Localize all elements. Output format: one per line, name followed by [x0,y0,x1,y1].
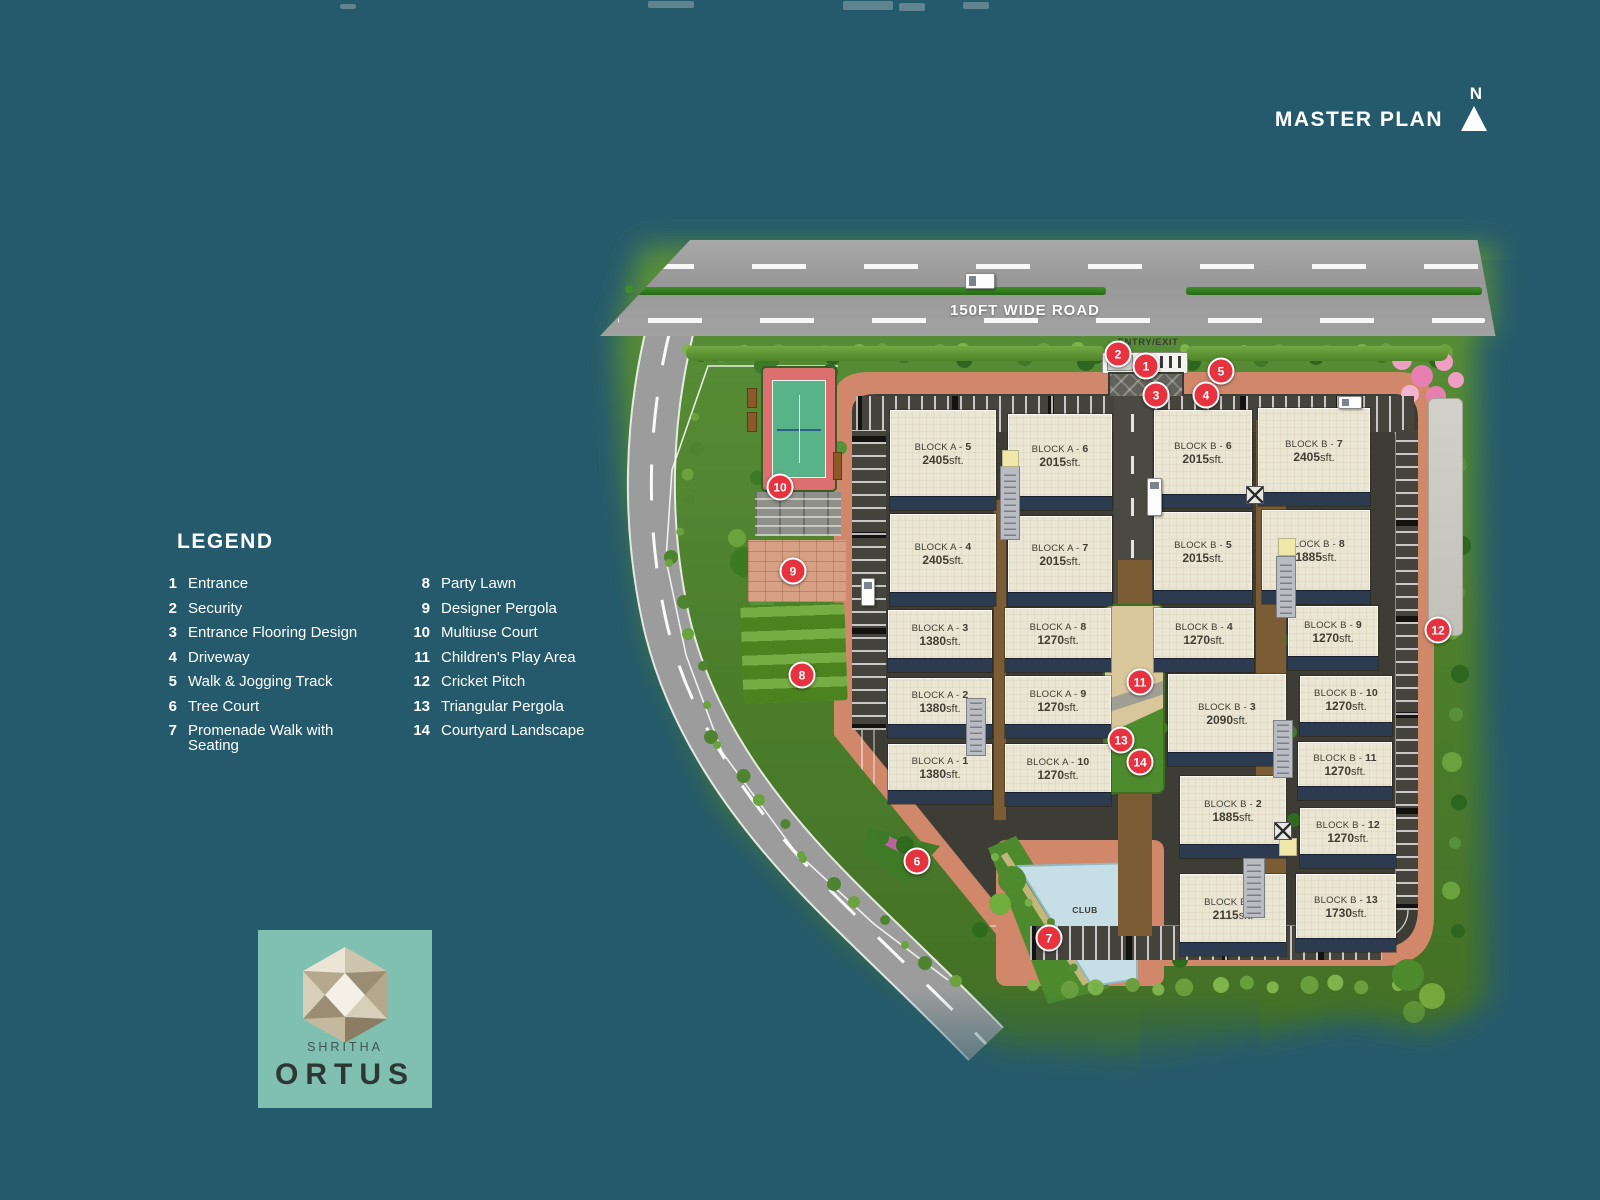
legend-item-label: Walk & Jogging Track [188,674,333,689]
legend-item-label: Driveway [188,650,250,665]
legend-item: 9 Designer Pergola [408,601,633,616]
legend-item-label: Designer Pergola [441,601,557,616]
legend-item: 11 Children's Play Area [408,650,633,665]
legend-item-number: 3 [155,625,177,640]
legend-item-number: 5 [155,674,177,689]
logo-name: ORTUS [258,1058,432,1092]
legend-item: 13 Triangular Pergola [408,699,633,714]
legend-item-label: Multiuse Court [441,625,538,640]
legend-item-label: Cricket Pitch [441,674,525,689]
legend-item-number: 7 [155,723,177,753]
legend-item-label: Tree Court [188,699,259,714]
legend-item-number: 11 [408,650,430,665]
amenity-marker: 3 [1143,382,1170,409]
amenity-marker: 2 [1105,341,1132,368]
legend-item-number: 13 [408,699,430,714]
legend-item-number: 6 [155,699,177,714]
legend-item: 12 Cricket Pitch [408,674,633,689]
legend-item: 6 Tree Court [155,699,380,714]
legend-item-label: Children's Play Area [441,650,576,665]
legend-panel: LEGEND 1 Entrance 2 Security 3 Entrance … [155,530,633,753]
logo-brand: SHRITHA [258,1040,432,1054]
legend-item-label: Entrance Flooring Design [188,625,357,640]
amenity-marker: 12 [1425,617,1452,644]
legend-item-label: Entrance [188,576,248,591]
legend-item-label: Courtyard Landscape [441,723,584,738]
legend-item: 10 Multiuse Court [408,625,633,640]
legend-item-number: 1 [155,576,177,591]
legend-item: 7 Promenade Walk with Seating [155,723,380,753]
legend-item-number: 4 [155,650,177,665]
legend-item-label: Triangular Pergola [441,699,564,714]
legend-item-label: Security [188,601,242,616]
legend-item-number: 2 [155,601,177,616]
legend-item-number: 9 [408,601,430,616]
legend-item: 2 Security [155,601,380,616]
legend-item: 3 Entrance Flooring Design [155,625,380,640]
legend-item-number: 10 [408,625,430,640]
legend-item-number: 8 [408,576,430,591]
legend-item: 14 Courtyard Landscape [408,723,633,738]
legend-title: LEGEND [177,530,633,554]
legend-item: 8 Party Lawn [408,576,633,591]
legend-item: 1 Entrance [155,576,380,591]
brand-logo: SHRITHA ORTUS [258,930,432,1108]
amenity-marker: 4 [1193,382,1220,409]
legend-item-label: Promenade Walk with Seating [188,723,380,753]
amenity-marker: 8 [789,662,816,689]
gem-icon [301,947,389,1043]
legend-item-number: 12 [408,674,430,689]
amenity-marker: 9 [780,558,807,585]
amenity-marker: 5 [1208,358,1235,385]
amenity-marker: 7 [1036,925,1063,952]
legend-item: 5 Walk & Jogging Track [155,674,380,689]
amenity-marker: 13 [1108,727,1135,754]
amenity-marker: 14 [1127,749,1154,776]
legend-item: 4 Driveway [155,650,380,665]
amenity-marker: 10 [767,474,794,501]
legend-item-number: 14 [408,723,430,738]
legend-item-label: Party Lawn [441,576,516,591]
legend-column-2: 8 Party Lawn 9 Designer Pergola 10 Multi… [408,576,633,753]
master-plan-canvas: MASTER PLAN N 150FT WIDE ROAD ENTRY/EXIT… [0,0,1600,1200]
amenity-marker: 6 [904,848,931,875]
legend-column-1: 1 Entrance 2 Security 3 Entrance Floorin… [155,576,380,753]
amenity-marker: 1 [1133,353,1160,380]
amenity-marker: 11 [1127,669,1154,696]
